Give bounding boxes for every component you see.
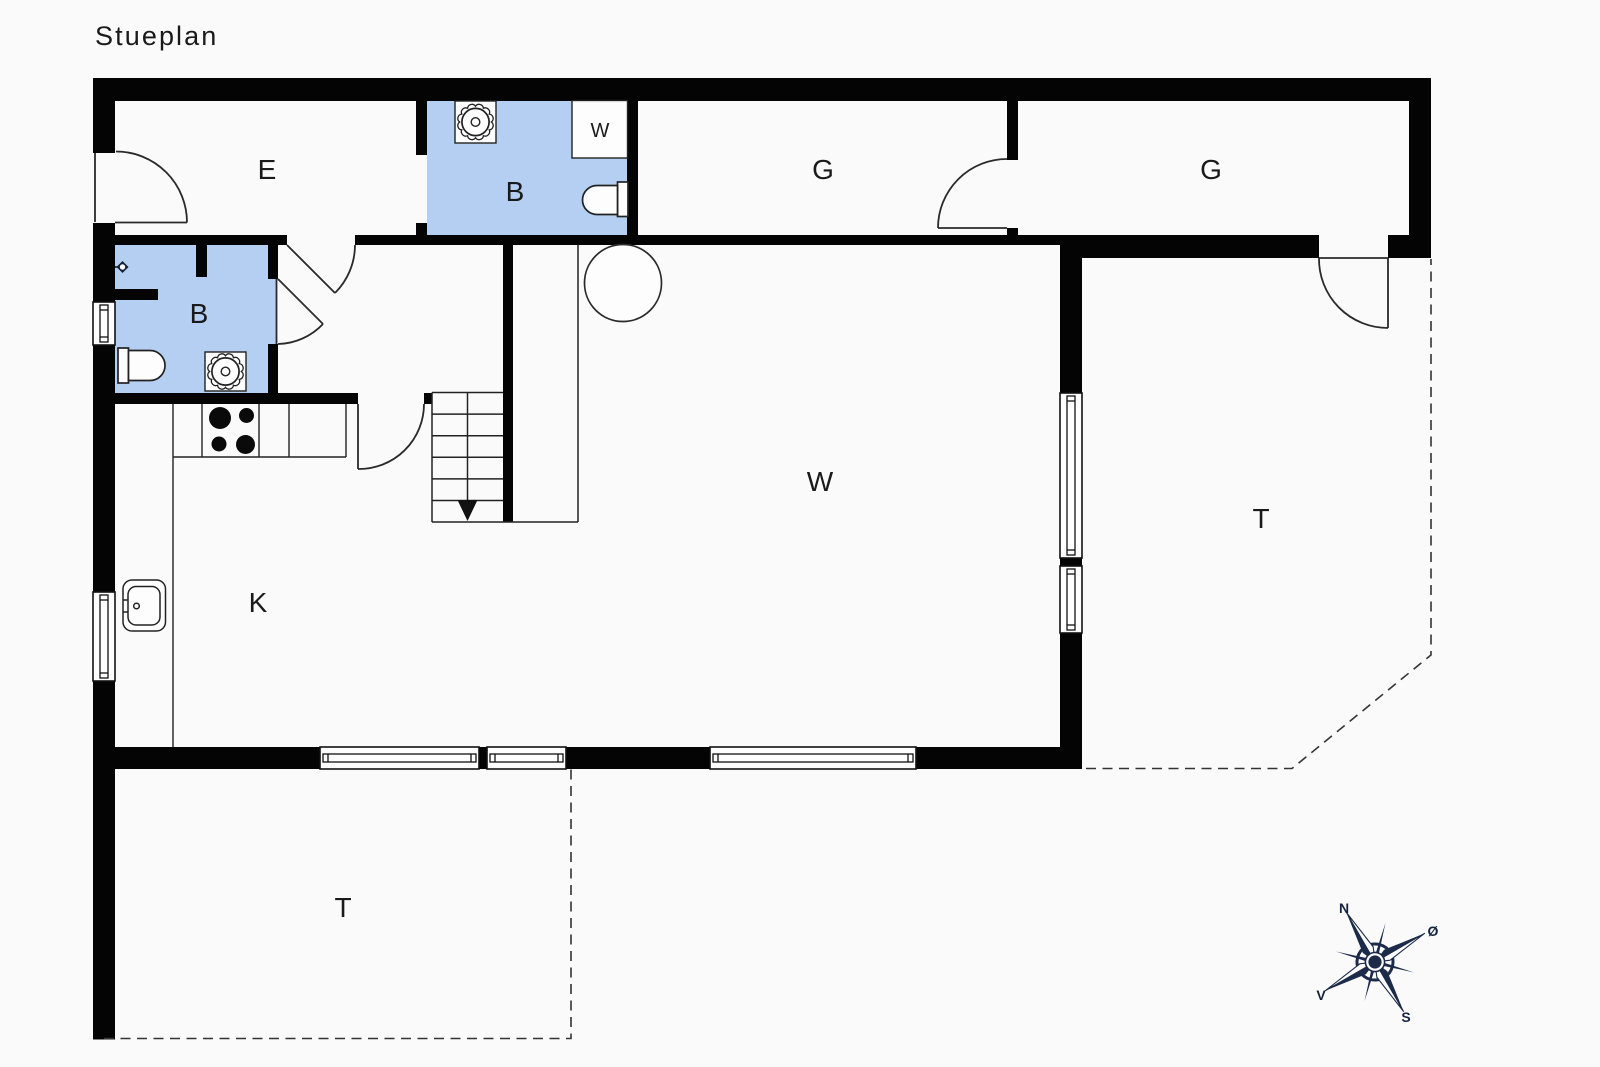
svg-text:W: W bbox=[591, 120, 610, 142]
svg-text:W: W bbox=[807, 466, 834, 497]
svg-text:E: E bbox=[258, 154, 277, 185]
svg-text:G: G bbox=[812, 154, 834, 185]
svg-text:S: S bbox=[1401, 1009, 1410, 1025]
svg-text:Ø: Ø bbox=[1428, 923, 1439, 939]
svg-text:T: T bbox=[1252, 503, 1269, 534]
svg-text:V: V bbox=[1316, 987, 1326, 1003]
svg-text:K: K bbox=[249, 587, 268, 618]
svg-text:B: B bbox=[190, 298, 209, 329]
svg-text:B: B bbox=[506, 176, 525, 207]
svg-text:G: G bbox=[1200, 154, 1222, 185]
svg-text:Stueplan: Stueplan bbox=[95, 21, 218, 51]
svg-text:T: T bbox=[334, 892, 351, 923]
svg-text:N: N bbox=[1339, 900, 1349, 916]
